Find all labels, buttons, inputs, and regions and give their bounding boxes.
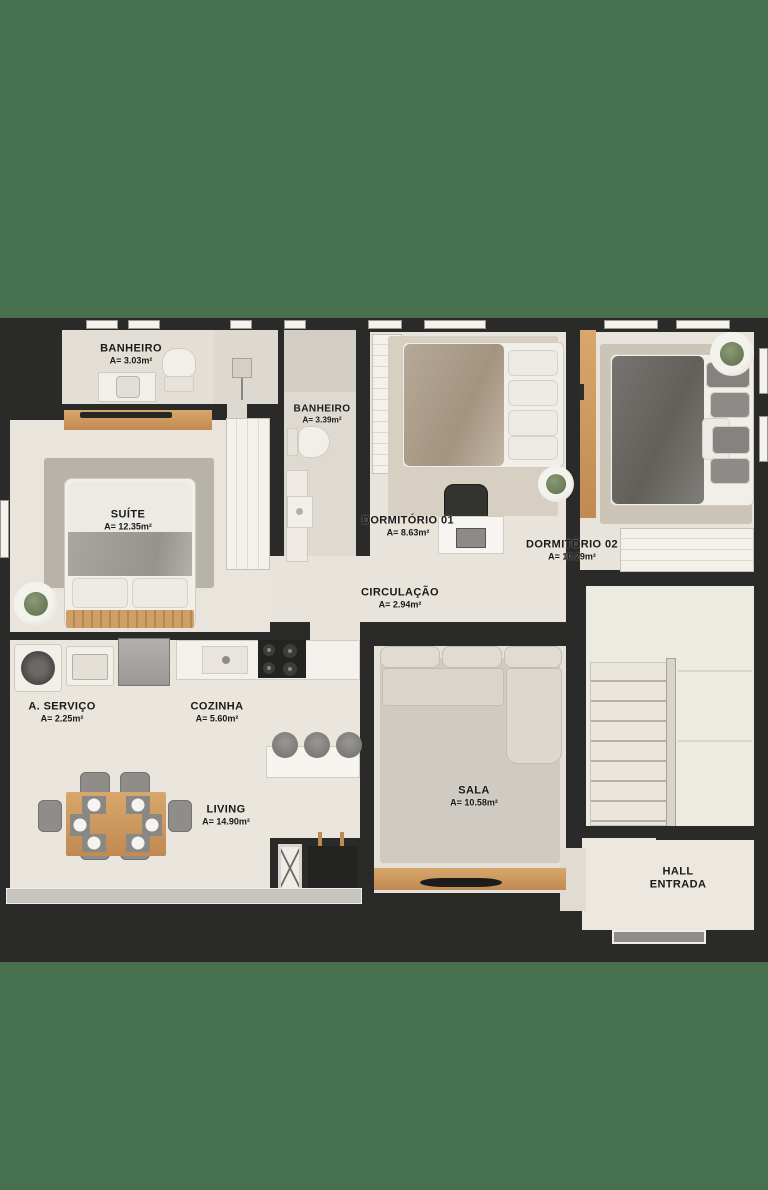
fridge (118, 638, 170, 686)
room-name: BANHEIRO (100, 343, 162, 356)
heater-pipe (318, 832, 322, 846)
bed-pillow (72, 578, 128, 608)
room-area: A= 3.39m² (294, 415, 351, 425)
bed-bench (66, 610, 194, 628)
room-area: A= 10.58m² (450, 797, 498, 807)
window (759, 416, 768, 462)
window (128, 320, 160, 329)
bathroom-sink-basin (116, 376, 140, 398)
room-label-living: LIVING A= 14.90m² (202, 804, 250, 827)
cooktop-burner (283, 662, 297, 676)
room-name: LIVING (202, 804, 250, 817)
wardrobe (620, 528, 754, 572)
water-heater (308, 846, 358, 890)
room-name: A. SERVIÇO (28, 701, 95, 714)
room-label-hall: HALL ENTRADA (650, 865, 707, 890)
toilet (162, 348, 196, 378)
room-label-aservico: A. SERVIÇO A= 2.25m² (28, 701, 95, 724)
sofa-back (442, 646, 502, 668)
door-handle (580, 384, 584, 400)
place-setting (126, 796, 150, 814)
stair-rail (666, 658, 676, 830)
room-label-cozinha: COZINHA A= 5.60m² (191, 701, 244, 724)
sink-drain (296, 508, 303, 515)
room-area: A= 10.29m² (526, 551, 618, 561)
balcony-glass-door (6, 888, 362, 904)
room-name: BANHEIRO (294, 403, 351, 415)
room-name: HALL (650, 865, 707, 878)
place-setting (82, 834, 106, 852)
sink-drain (222, 656, 230, 664)
floor-lamp (232, 358, 252, 378)
room-name: CIRCULAÇÃO (361, 587, 439, 600)
window (0, 500, 9, 558)
cooktop-burner (263, 644, 275, 656)
room-name: DORMITÓRIO 01 (362, 515, 454, 528)
stair-landing-line (678, 740, 752, 742)
cooktop-burner (263, 662, 275, 674)
side-table-plant (538, 466, 574, 502)
toilet-tank (287, 428, 298, 456)
window (604, 320, 658, 329)
tv (80, 412, 172, 418)
bed-pillow (508, 350, 558, 376)
place-setting (126, 834, 150, 852)
window (284, 320, 306, 329)
room-label-dormitorio1: DORMITÓRIO 01 A= 8.63m² (362, 515, 454, 538)
room-label-circulacao: CIRCULAÇÃO A= 2.94m² (361, 587, 439, 610)
sofa-chaise (506, 668, 562, 764)
room-label-banheiro2: BANHEIRO A= 3.39m² (294, 403, 351, 424)
bed-duvet (68, 532, 192, 576)
stair-treads (590, 662, 668, 826)
door-leaf (580, 330, 596, 518)
room-area: A= 12.35m² (104, 521, 152, 531)
sofa-seat (382, 668, 504, 706)
room-label-dormitorio2: DORMITÓRIO 02 A= 10.29m² (526, 539, 618, 562)
room-name: ENTRADA (650, 878, 707, 891)
bed-pillow (710, 392, 750, 418)
dining-chair (168, 800, 192, 832)
bed-pillow (508, 380, 558, 406)
window (230, 320, 252, 329)
sofa-back (380, 646, 440, 668)
window (86, 320, 118, 329)
cooktop-burner (283, 644, 297, 658)
room-area: A= 14.90m² (202, 816, 250, 826)
toilet-tank (164, 376, 194, 392)
place-setting (142, 814, 162, 836)
bed-pillow (508, 436, 558, 460)
room-label-suite: SUÍTE A= 12.35m² (104, 509, 152, 532)
window (424, 320, 486, 329)
floor-plan-render: { "image_type": "apartment floor plan to… (0, 0, 768, 1190)
room-area: A= 2.94m² (361, 599, 439, 609)
banheiro2-shower-floor (284, 330, 356, 392)
bar-stool (272, 732, 298, 758)
laundry-sink-basin (72, 654, 108, 680)
room-area: A= 3.03m² (100, 355, 162, 365)
bar-stool (304, 732, 330, 758)
stair-landing-line (678, 670, 752, 672)
floor-plan: BANHEIRO A= 3.03m² BANHEIRO A= 3.39m² SU… (0, 318, 768, 962)
bed-pillow (132, 578, 188, 608)
washer-drum (21, 651, 55, 685)
room-area: A= 5.60m² (191, 713, 244, 723)
heater-pipe (340, 832, 344, 846)
toilet (298, 426, 330, 458)
bed-pillow (508, 410, 558, 436)
place-setting (82, 796, 106, 814)
stair-hall-wall (656, 826, 754, 840)
room-label-sala: SALA A= 10.58m² (450, 785, 498, 808)
room-label-banheiro1: BANHEIRO A= 3.03m² (100, 343, 162, 366)
bed-pillow (712, 426, 750, 454)
sofa-back (504, 646, 562, 668)
bed-duvet (404, 344, 504, 466)
room-name: COZINHA (191, 701, 244, 714)
place-setting (70, 814, 90, 836)
room-name: SALA (450, 785, 498, 798)
duct-shaft (278, 844, 302, 892)
room-area: A= 8.63m² (362, 527, 454, 537)
window (368, 320, 402, 329)
bed-duvet (612, 356, 704, 504)
room-area: A= 2.25m² (28, 713, 95, 723)
laptop (456, 528, 486, 548)
window (676, 320, 730, 329)
closet-shelves (226, 418, 270, 570)
floor-lamp-stem (241, 378, 243, 400)
side-table-plant (710, 332, 754, 376)
room-name: DORMITÓRIO 02 (526, 539, 618, 552)
entry-door (614, 932, 704, 942)
bed-pillow (710, 458, 750, 484)
floor-plant (14, 582, 58, 626)
dining-chair (38, 800, 62, 832)
room-name: SUÍTE (104, 509, 152, 522)
bar-stool (336, 732, 362, 758)
window (759, 348, 768, 394)
tv (420, 878, 502, 887)
